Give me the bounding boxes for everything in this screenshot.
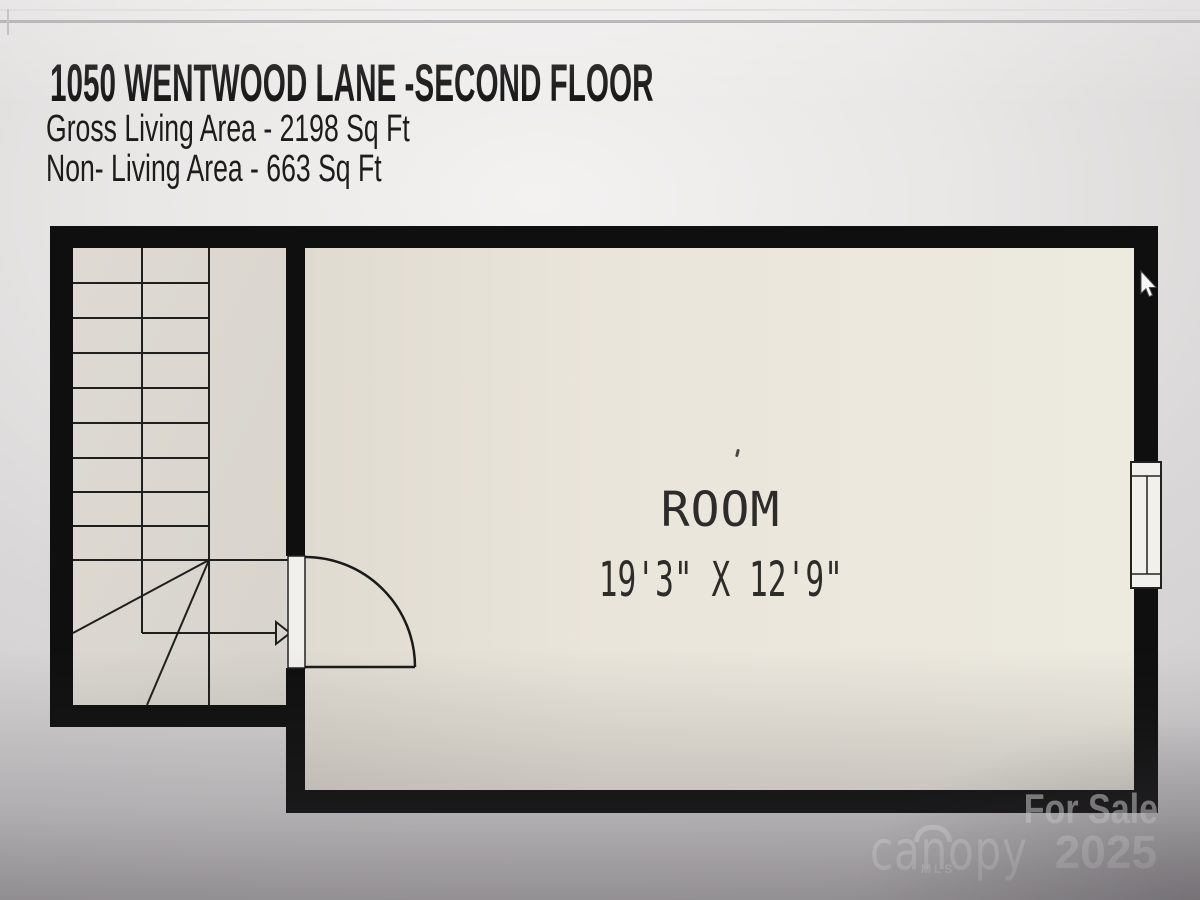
door-jamb [288, 556, 305, 668]
mls-label: MLS [921, 863, 955, 875]
wall-top [50, 226, 1158, 248]
stairwell-floor [73, 248, 286, 705]
for-sale-watermark: For Sale [1024, 788, 1158, 830]
room-dimensions: 19'3" X 12'9" [305, 556, 1136, 604]
room-label: ROOM [305, 486, 1136, 534]
wall-stair-room-divider [286, 248, 305, 556]
floorplan-photo: 1050 WENTWOOD LANE -SECOND FLOOR Gross L… [0, 0, 1200, 900]
floorplan-drawing [0, 0, 1200, 900]
wall-left [50, 226, 73, 727]
year-watermark: 2025 [1055, 829, 1157, 875]
wall-stair-bottom [50, 705, 305, 727]
room-dimensions-text: 19'3" X 12'9" [598, 556, 842, 604]
